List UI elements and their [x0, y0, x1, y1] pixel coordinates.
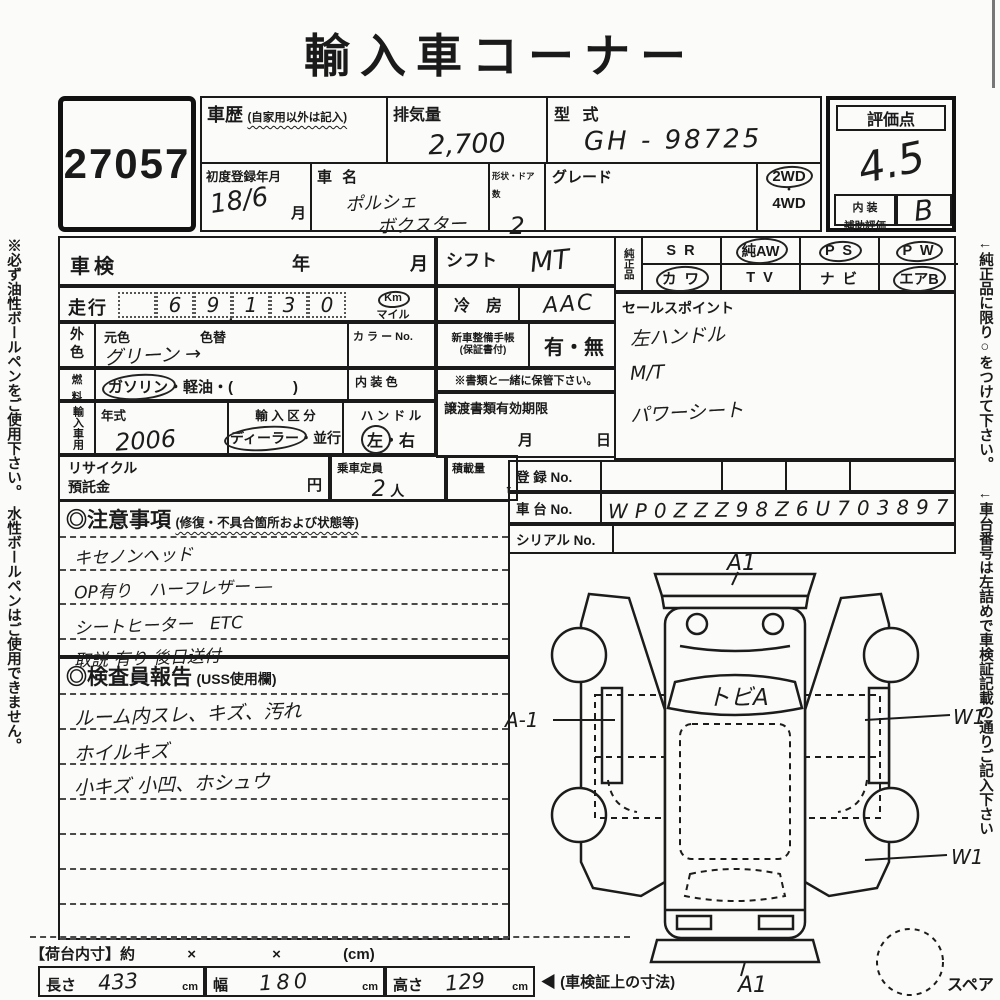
capacity-value: 2 [372, 477, 386, 502]
interior-color-cell: 内 装 色 [347, 370, 438, 399]
displacement-cell: 排気量 2,700 [386, 96, 548, 164]
shaken-label: 車検 [70, 250, 118, 279]
height-value: 129 [444, 968, 486, 995]
taillight-left [677, 916, 711, 929]
right-margin-note-top: ←純正品に限り○をつけて下さい。 [976, 236, 992, 496]
ac-label: 冷 房 [454, 292, 502, 316]
genuine-parts-grid: 純正品 S R 純AW P S P W カ ワ T V ナ ビ エアB [614, 236, 956, 292]
genuine-leather: カ ワ [662, 268, 701, 289]
shift-value: MT [528, 244, 571, 279]
color-value: グリーン → [103, 338, 201, 370]
import-division-circled: ディーラー [230, 428, 299, 448]
rating-score: 4.5 [854, 132, 930, 194]
fuel-row: 燃 料 ガソリン・軽油・( ) 内 装 色 [58, 368, 436, 401]
import-division-label: 輸 入 区 分 [229, 405, 342, 424]
notes-subtitle: (修復・不具合箇所および状態等) [175, 516, 358, 530]
inspector-line [60, 800, 508, 835]
doors-label: 形状・ドア数 [492, 171, 535, 199]
mileage-unit: Km マイル [354, 289, 432, 323]
first-reg-value: 18/6 [208, 182, 270, 220]
genuine-ps: P S [825, 243, 854, 259]
rating-interior-score: B [913, 193, 936, 228]
history-label: 車歴 [207, 105, 243, 125]
genuine-airbag: エアB [899, 268, 938, 289]
rear-bumper [651, 940, 819, 962]
fuel-header: 燃 料 [60, 370, 96, 399]
capacity-unit: 人 [390, 483, 404, 499]
displacement-value: 2,700 [393, 126, 542, 162]
notes-line: シートヒーター ETC [60, 605, 508, 640]
reg-divider [785, 462, 787, 490]
rating-box: 評価点 4.5 内 装 補助評価 B [826, 96, 956, 232]
model-year-value: 2006 [114, 421, 223, 456]
registration-no-row: 登 録 No. [508, 460, 956, 492]
color-header: 外 色 [60, 324, 96, 366]
spare-tire-outline [877, 929, 943, 995]
mileage-digit-cell: 6 [156, 292, 194, 318]
fuel-options: ガソリン・軽油・( ) [108, 376, 298, 397]
transfer-cell: 譲渡書類有効期限 月 日 [436, 392, 616, 458]
width-value: 180 [258, 969, 311, 996]
ac-value: AAC [542, 290, 595, 319]
genuine-pw: P W [902, 243, 935, 259]
left-front-wheel [552, 628, 606, 682]
registration-no-label: 登 録 No. [516, 466, 572, 486]
grade-label: グレード [552, 169, 612, 186]
model-year-label: 年式 [101, 409, 126, 423]
transfer-label: 譲渡書類有効期限 [444, 401, 548, 416]
ac-cell: 冷 房 AAC [436, 286, 616, 322]
inspector-line [60, 835, 508, 870]
mileage-unit-mile: マイル [377, 309, 410, 321]
displacement-label: 排気量 [393, 107, 441, 124]
service-book-value: 有・無 [544, 331, 604, 360]
keep-note-cell: ※書類と一緒に保管下さい。 [436, 368, 616, 392]
first-reg-label: 初度登録年月 [206, 170, 281, 184]
mark-windshield: トビA [707, 685, 769, 711]
headlight-right [763, 614, 783, 634]
notes-box: ◎注意事項 (修復・不具合箇所および状態等) キセノンヘッド OP有り ハーフレ… [58, 500, 510, 657]
mileage-digit-cell: 3 [270, 292, 308, 318]
car-name-line2: ボクスター [377, 209, 484, 239]
serial-no-label: シリアル No. [516, 529, 595, 549]
shift-cell: シフト MT [436, 236, 616, 286]
mark-right-top: W1 [953, 705, 986, 729]
inspector-line: ホイルキズ [60, 730, 508, 765]
genuine-aw: 純AW [742, 240, 780, 261]
rating-interior-label1: 内 装 [852, 202, 877, 214]
lot-number-box: 27057 [58, 96, 196, 232]
length-value: 433 [97, 969, 139, 996]
mileage-digit-cell [118, 292, 156, 318]
import-row: 輸入車用 年式 2006 輸 入 区 分 ディーラー・並行 ハ ン ド ル 左・… [58, 401, 436, 455]
rating-interior-label-box: 内 装 補助評価 [834, 194, 896, 226]
model-code-label: 型 式 [554, 107, 602, 124]
sales-point-line: パワーシート [629, 395, 744, 428]
left-margin-note: ※必ず油性ボールペンをご使用下さい。 水性ボールペンはご使用できません。 [4, 238, 20, 838]
inspector-subtitle: (USS使用欄) [196, 671, 276, 687]
drive-2wd: 2WD [772, 168, 805, 185]
capacity-label: 乗車定員 [337, 463, 383, 475]
rating-label-box: 評価点 [836, 105, 946, 131]
front-bumper-band [662, 596, 808, 608]
car-name-label: 車 名 [317, 169, 360, 186]
headlight-left [687, 614, 707, 634]
grade-cell: グレード [544, 162, 758, 232]
import-division-cell: 輸 入 区 分 ディーラー・並行 [227, 403, 342, 453]
genuine-header: 純正品 [616, 238, 643, 290]
shift-label: シフト [446, 246, 497, 271]
notes-line: キセノンヘッド [60, 538, 508, 571]
first-reg-cell: 初度登録年月 18/6 月 [200, 162, 312, 232]
capacity-cell: 乗車定員 2 人 [330, 455, 446, 501]
inspector-box: ◎検査員報告 (USS使用欄) ルーム内スレ、キズ、汚れ ホイルキズ 小キズ 小… [58, 657, 510, 940]
interior-color-label: 内 装 色 [355, 375, 398, 389]
mileage-unit-km: Km [384, 293, 402, 305]
vehicle-diagram: A1 トビA A-1 W1 W1 A1 スペア [495, 552, 1000, 1000]
length-cell: 長さ 433 cm [38, 966, 205, 997]
inspector-line: ルーム内スレ、キズ、汚れ [60, 695, 508, 730]
handle-cell: ハ ン ド ル 左・右 [342, 403, 438, 453]
handle-left: 左 [367, 427, 383, 451]
repaint-label: 色替 [200, 327, 226, 346]
sales-points-label: セールスポイント [622, 298, 734, 318]
fuel-circled: ガソリン [108, 376, 168, 397]
dims-title: 【荷台内寸】約 [30, 946, 135, 963]
page-title: 輸入車コーナー [0, 20, 1000, 86]
mark-right-bottom: W1 [951, 845, 984, 869]
right-rocker-panel [869, 688, 889, 783]
genuine-tv: T V [746, 270, 775, 286]
reg-divider [849, 462, 851, 490]
mileage-label: 走行 [68, 294, 108, 320]
mark-front: A1 [725, 552, 756, 576]
reg-divider [721, 462, 723, 490]
right-rear-wheel [864, 788, 918, 842]
drive-dot: ・ [758, 186, 820, 195]
drive-4wd: 4WD [758, 195, 820, 212]
shaken-year-label: 年 [292, 250, 310, 276]
spare-label: スペア [947, 977, 994, 994]
load-label: 積載量 [452, 463, 485, 475]
mileage-digit-cell: 0 [308, 292, 346, 318]
sales-point-line: M/T [629, 361, 665, 385]
rating-label: 評価点 [867, 106, 915, 130]
handle-label: ハ ン ド ル [344, 405, 438, 424]
mark-rear: A1 [736, 973, 767, 998]
doors-cell: 形状・ドア数 2 [488, 162, 546, 232]
right-front-wheel [864, 628, 918, 682]
inspector-line [60, 870, 508, 905]
left-rear-wheel [552, 788, 606, 842]
recycle-cell: リサイクル 預託金 円 [58, 455, 330, 501]
first-reg-unit: 月 [291, 202, 306, 223]
chassis-no-row: 車 台 No. WP0ZZZ98Z6U703897 [508, 492, 956, 524]
history-note: (自家用以外は記入) [247, 112, 347, 124]
notes-header: ◎注意事項 (修復・不具合箇所および状態等) [60, 502, 508, 538]
inspector-line [60, 905, 508, 940]
auction-sheet: 輸入車コーナー ※必ず油性ボールペンをご使用下さい。 水性ボールペンはご使用でき… [0, 0, 1000, 1000]
width-cell: 幅 180 cm [205, 966, 385, 997]
height-cell: 高さ 129 cm [385, 966, 535, 997]
sales-point-line: 左ハンドル [629, 320, 725, 352]
drive-cell: 2WD ・ 4WD [756, 162, 822, 232]
inspector-header: ◎検査員報告 (USS使用欄) [60, 659, 508, 695]
genuine-sr: S R [666, 243, 696, 259]
notes-title: ◎注意事項 [66, 509, 171, 532]
color-row: 外 色 元色 色替 グリーン → カ ラ ー No. [58, 322, 436, 368]
color-no-cell: カ ラ ー No. [347, 324, 438, 366]
mileage-digit-cell: 9 [194, 292, 232, 318]
recycle-yen: 円 [307, 474, 322, 495]
dims-ref-note: ◀ (車検証上の寸法) [541, 971, 675, 992]
taillight-right [759, 916, 793, 929]
import-header: 輸入車用 [60, 403, 96, 453]
model-year-cell: 年式 2006 [96, 403, 227, 453]
color-no-label: カ ラ ー No. [353, 331, 413, 343]
mileage-row: 走行 6 9 1 3 0 , Km マイル [58, 286, 436, 322]
car-name-cell: 車 名 ポルシェ ボクスター [310, 162, 490, 232]
lot-number: 27057 [64, 140, 191, 188]
dims-title-row: 【荷台内寸】約 × × (cm) [30, 943, 610, 964]
genuine-navi: ナ ビ [820, 268, 859, 289]
inspector-title: ◎検査員報告 [66, 666, 192, 689]
shaken-row: 車検 年 月 [58, 236, 436, 286]
mark-left: A-1 [503, 708, 539, 732]
notes-line: OP有り ハーフレザー ― [60, 571, 508, 605]
model-code-cell: 型 式 GH - 98725 [546, 96, 822, 164]
rating-interior-score-box: B [896, 194, 952, 226]
chassis-no-label: 車 台 No. [516, 498, 572, 518]
rating-interior-label2: 補助評価 [844, 220, 886, 232]
serial-no-row: シリアル No. [508, 524, 956, 554]
scan-artifact [992, 0, 995, 88]
mileage-digit-cell: 1 [232, 292, 270, 318]
inspector-line: 小キズ 小凹、ホシュウ [60, 765, 508, 800]
dims-dash-line [30, 936, 630, 938]
history-cell: 車歴 (自家用以外は記入) [200, 96, 388, 164]
sales-points-box: セールスポイント 左ハンドル M/T パワーシート [614, 292, 956, 460]
model-code-value: GH - 98725 [584, 123, 814, 157]
left-rocker-panel [602, 688, 622, 783]
service-book-cell: 新車整備手帳 (保証書付) 有・無 [436, 322, 616, 368]
chassis-no-value: WP0ZZZ98Z6U703897 [608, 495, 956, 524]
shaken-month-label: 月 [410, 250, 428, 276]
